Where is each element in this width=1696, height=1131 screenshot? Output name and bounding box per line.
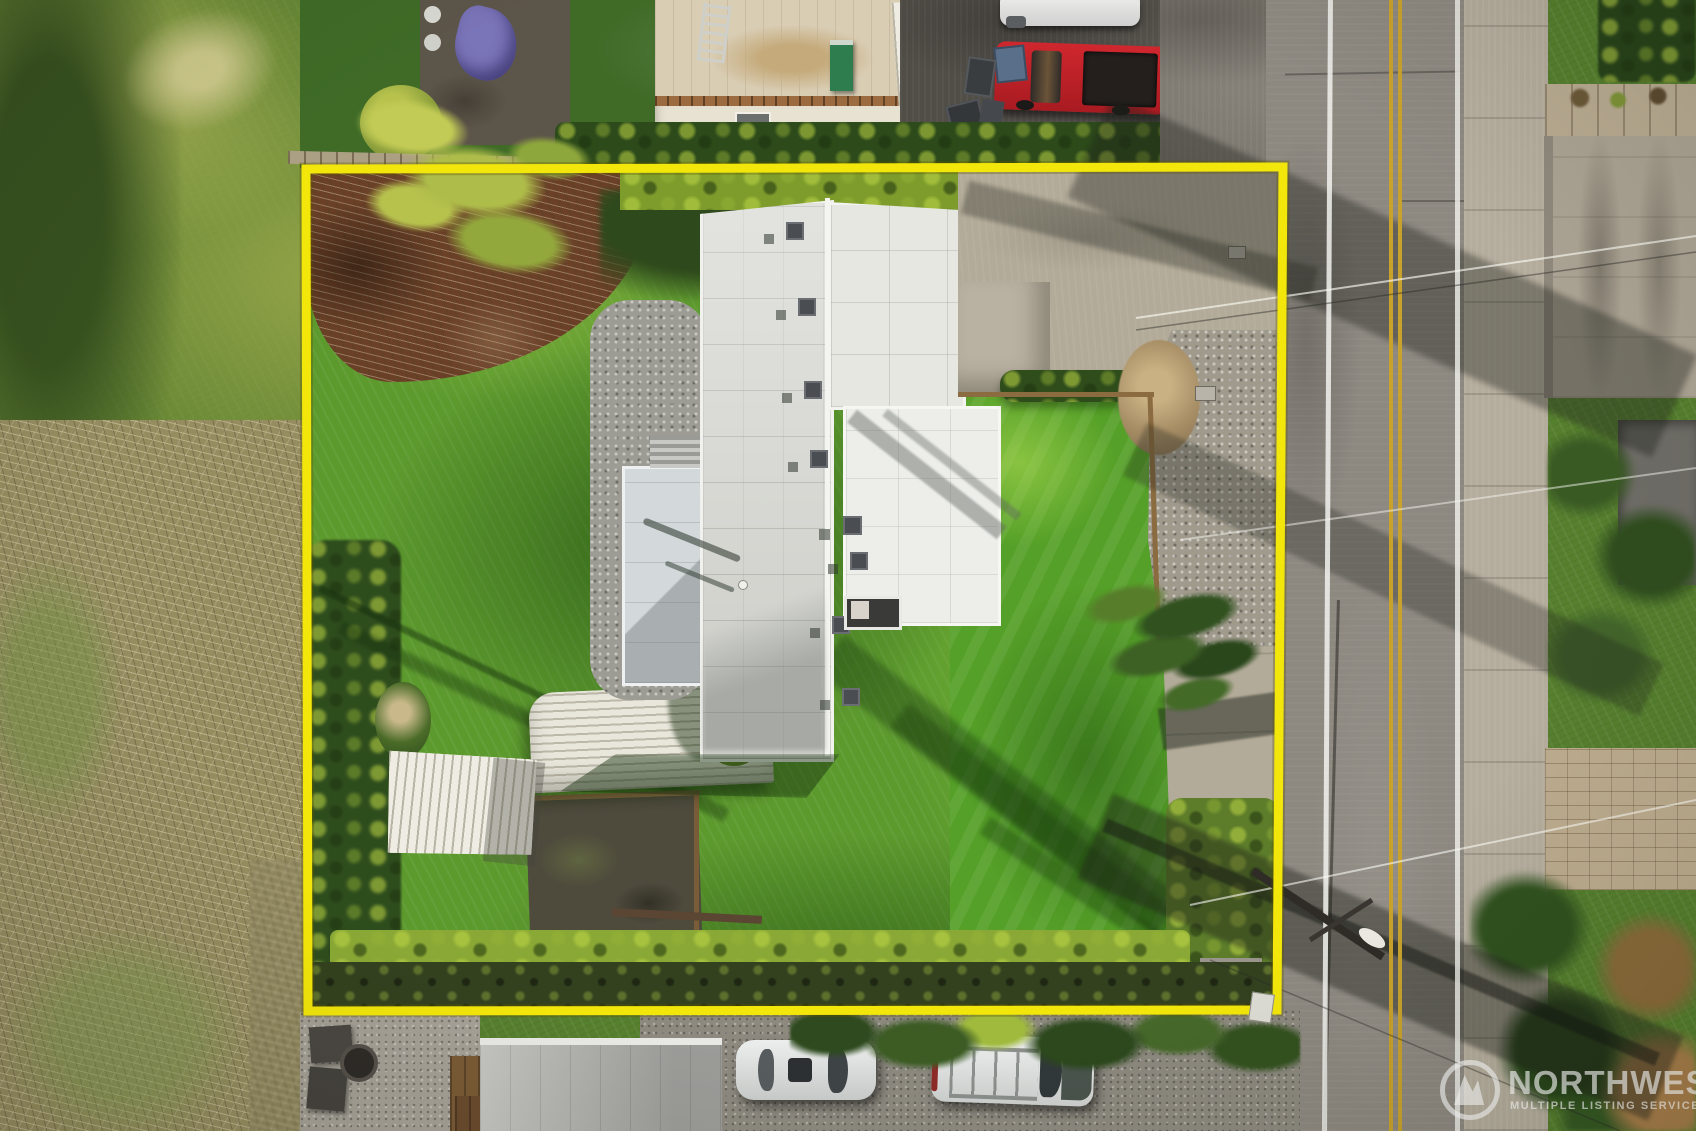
corner-utility-box (1248, 992, 1275, 1024)
fire-bowl (340, 1044, 378, 1082)
moss-patch-left-lower (10, 930, 240, 1131)
center-line-yellow (1389, 0, 1393, 1131)
planter-shrubs (1560, 80, 1690, 120)
sedan-rear-glass (758, 1049, 774, 1091)
roof-ridge (825, 198, 830, 756)
truck-cab-glass (1030, 50, 1062, 103)
neighbor-roof-bottom (480, 1038, 722, 1131)
roof-pipe (738, 580, 748, 590)
roof-vent (786, 222, 804, 240)
roof-vent (810, 450, 828, 468)
watermark-tagline: MULTIPLE LISTING SERVICE (1510, 1100, 1696, 1112)
center-line-yellow (1398, 0, 1402, 1131)
roof-vent (842, 688, 860, 706)
roof-vent (843, 516, 862, 535)
left-round-bush (375, 682, 431, 758)
hedge-top-right-corner (1598, 0, 1696, 82)
garbage-bin (963, 56, 996, 98)
barrel (424, 6, 441, 23)
mls-logo-glyph (1454, 1075, 1484, 1105)
utility-lid (1195, 386, 1216, 401)
roof-shade-south (703, 560, 825, 750)
corner-evergreen-tree (306, 62, 614, 319)
roof-northeast-plane (828, 202, 966, 410)
chimney-cap (851, 601, 869, 619)
roof-vent (798, 298, 816, 316)
planter-box (306, 1066, 348, 1111)
aerial-photo: NORTHWEST MULTIPLE LISTING SERVICE (0, 0, 1696, 1131)
watermark: NORTHWEST MULTIPLE LISTING SERVICE (1432, 1056, 1696, 1126)
roof-vent (850, 552, 868, 570)
road-edge-line-east (1455, 0, 1460, 1131)
moss-patch-left (0, 560, 120, 820)
overhang-bushes (790, 1004, 1300, 1076)
lawn-wood-edge (958, 392, 1154, 397)
small-shed-shade (483, 758, 546, 867)
neighbor-deck (655, 0, 905, 106)
silver-car-windshield (1006, 16, 1026, 28)
entry-steps (650, 436, 700, 468)
mls-logo-icon (1440, 1060, 1500, 1120)
roof-vent (804, 381, 822, 399)
watermark-brand: NORTHWEST (1508, 1064, 1696, 1102)
truck-wheel (1016, 100, 1034, 111)
green-utility-unit (830, 40, 853, 91)
recycle-bin-blue (993, 44, 1028, 83)
hedge-mid-row (1000, 370, 1135, 402)
